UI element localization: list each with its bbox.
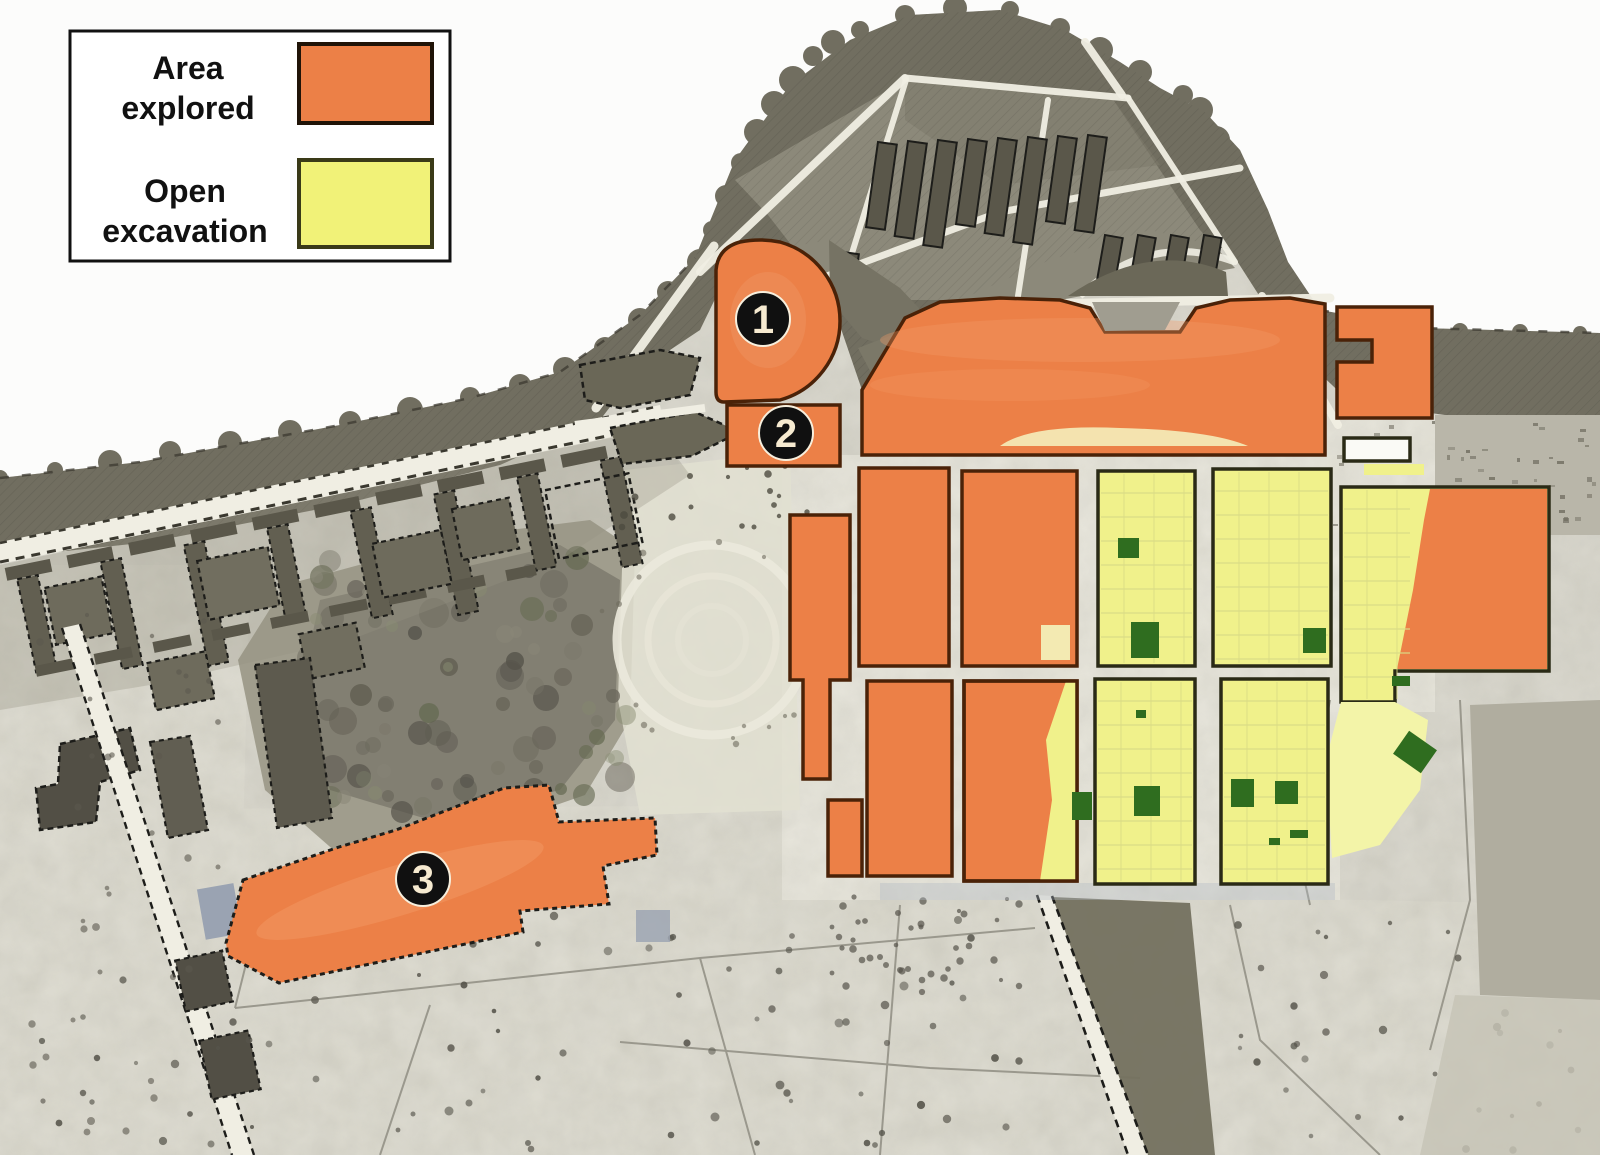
svg-text:2: 2 bbox=[775, 412, 797, 456]
svg-text:3: 3 bbox=[412, 858, 434, 902]
svg-text:Open: Open bbox=[144, 173, 226, 209]
svg-text:explored: explored bbox=[121, 90, 254, 126]
svg-text:excavation: excavation bbox=[102, 213, 267, 249]
svg-text:Area: Area bbox=[152, 50, 223, 86]
svg-text:1: 1 bbox=[752, 298, 774, 342]
